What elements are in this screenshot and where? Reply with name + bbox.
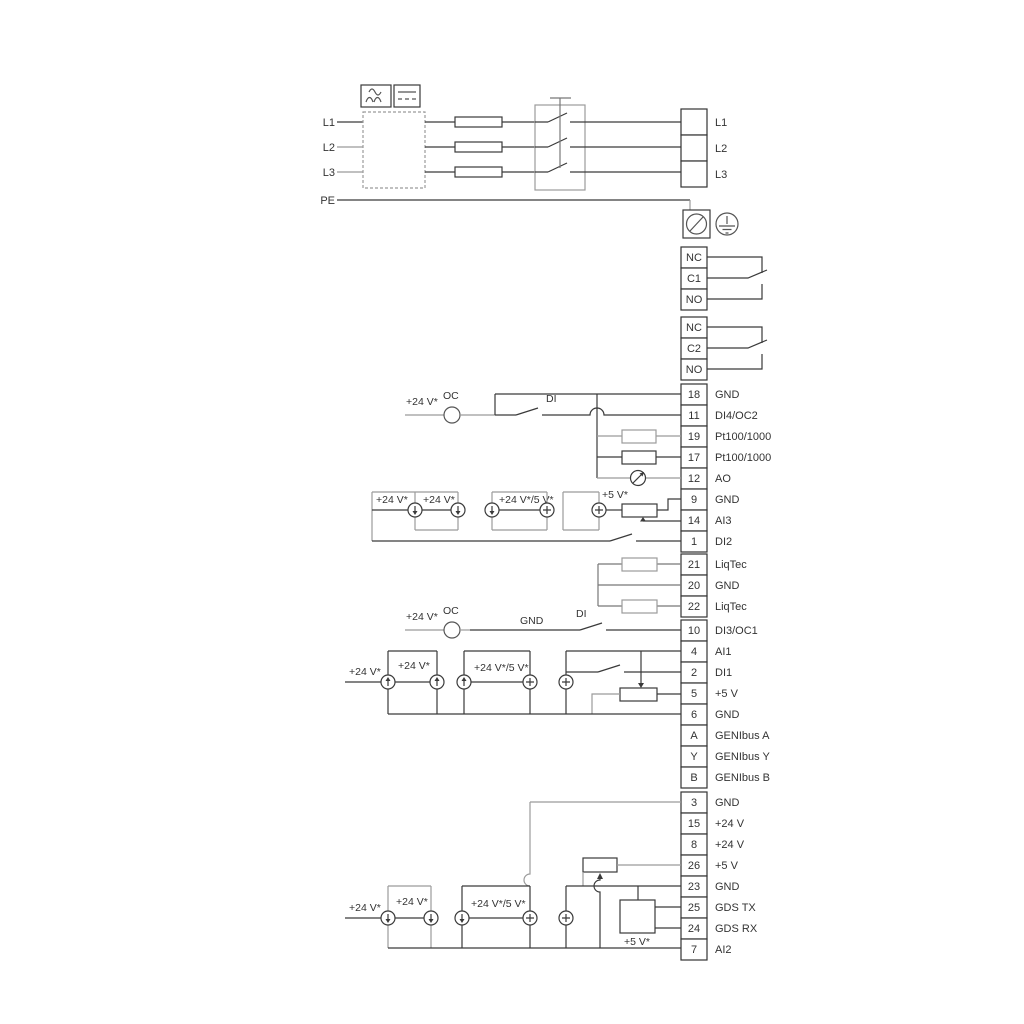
terminal-number: 4 [691, 646, 697, 658]
terminal-label: GDS RX [715, 923, 758, 935]
current-sink-icon [451, 503, 465, 517]
current-sink-icon [424, 911, 438, 925]
phase-l2-in-label: L2 [323, 142, 335, 154]
pt100-circuit-17 [597, 451, 681, 464]
plus5v-label: +5 V* [624, 936, 650, 948]
terminal-number: B [690, 772, 697, 784]
gds-sensor-box [620, 900, 655, 933]
fuse-l3 [455, 167, 502, 177]
earth-ground-icon [716, 213, 738, 235]
terminal-label: GND [715, 709, 740, 721]
di4-switch [516, 408, 538, 415]
di-label: DI [546, 393, 557, 405]
diagram-canvas: L1 L2 L3 PE [0, 0, 1024, 1024]
terminal-label: +24 V [715, 818, 745, 830]
terminal-number: 7 [691, 944, 697, 956]
io-terminal-block-2: 21 20 22 LiqTec GND LiqTec [598, 554, 747, 617]
ai1-potentiometer [620, 688, 657, 701]
oc1-circle [444, 622, 460, 638]
terminal-label: GDS TX [715, 902, 756, 914]
terminal-number: 5 [691, 688, 697, 700]
terminal-number: 8 [691, 839, 697, 851]
relay1-no-label: NO [686, 294, 703, 306]
terminal-label: LiqTec [715, 601, 747, 613]
terminal-number: 6 [691, 709, 697, 721]
voltage-source-icon [592, 503, 606, 517]
terminal-label: Pt100/1000 [715, 452, 771, 464]
relay1-c1-label: C1 [687, 273, 701, 285]
terminal-label: GND [715, 881, 740, 893]
terminal-number: 10 [688, 625, 700, 637]
dc-symbol-icon [394, 85, 420, 107]
terminal-label: DI2 [715, 536, 732, 548]
pt100-circuit-19 [597, 430, 681, 443]
gnd-label: GND [520, 615, 544, 627]
relay2-no-label: NO [686, 364, 703, 376]
terminal-label: GENIbus B [715, 772, 770, 784]
voltage-source-icon [559, 675, 573, 689]
liqtec-resistor-21 [622, 558, 657, 571]
plus24v-label: +24 V* [349, 902, 381, 914]
di2-switch [610, 534, 632, 541]
oc2-circle [444, 407, 460, 423]
ao-circuit [597, 471, 681, 486]
relay1-block: NC C1 NO [681, 247, 767, 310]
gnd-drop-circuit [524, 802, 681, 886]
terminal-label: +5 V [715, 860, 739, 872]
voltage-source-icon [540, 503, 554, 517]
terminal-label: +24 V [715, 839, 745, 851]
terminal-number: 12 [688, 473, 700, 485]
terminal-label: Pt100/1000 [715, 431, 771, 443]
current-source-icon [457, 675, 471, 689]
mains-terminal-block: L1 L2 L3 [681, 109, 727, 187]
plus24v-label: +24 V* [423, 494, 455, 506]
ai3-sensor-group: +24 V* +24 V* +24 V*/5 V* +5 V* [372, 489, 681, 541]
terminal-number: 19 [688, 431, 700, 443]
relay1-nc-label: NC [686, 252, 702, 264]
terminal-number: 23 [688, 881, 700, 893]
terminal-number: 11 [688, 410, 699, 422]
terminal-label: DI3/OC1 [715, 625, 758, 637]
terminal-number: 21 [688, 559, 700, 571]
voltage-source-icon [523, 911, 537, 925]
fuse-l1 [455, 117, 502, 127]
terminal-label: GENIbus Y [715, 751, 770, 763]
fuse-l2 [455, 142, 502, 152]
pt100-resistor-17 [622, 451, 656, 464]
terminal-label: DI1 [715, 667, 732, 679]
terminal-number: 26 [688, 860, 700, 872]
terminal-number: 14 [688, 515, 700, 527]
terminal-number: 1 [691, 536, 697, 548]
di1-switch [598, 665, 620, 672]
terminal-label: GND [715, 389, 740, 401]
pt100-resistor-19 [622, 430, 656, 443]
current-sink-icon [408, 503, 422, 517]
io-terminal-block-3: 10 4 2 5 6 A Y B DI3/OC1 AI1 DI1 +5 V GN… [681, 620, 770, 788]
terminal-label: AI1 [715, 646, 732, 658]
terminal-label: AI2 [715, 944, 732, 956]
io-terminal-block-1: 18 11 19 17 12 9 14 1 GND DI4/OC2 Pt100/… [681, 384, 771, 552]
current-source-icon [381, 675, 395, 689]
terminal-label: GND [715, 494, 740, 506]
ai3-potentiometer [622, 504, 657, 517]
terminal-label: AO [715, 473, 731, 485]
terminal-label: GND [715, 797, 740, 809]
voltage-source-icon [559, 911, 573, 925]
plus5v-label: +5 V* [602, 489, 628, 501]
filter-box [363, 112, 425, 188]
current-sink-icon [485, 503, 499, 517]
power-input-section: L1 L2 L3 PE [320, 85, 738, 238]
terminal-label: GENIbus A [715, 730, 770, 742]
main-switch [535, 98, 585, 190]
plus24v-label: +24 V* [406, 396, 438, 408]
terminal-number: Y [690, 751, 698, 763]
io-terminal-block-4: 3 15 8 26 23 25 24 7 GND +24 V +24 V +5 … [681, 792, 758, 960]
current-source-icon [430, 675, 444, 689]
plus24v-5v-label: +24 V*/5 V* [474, 662, 529, 674]
relay2-nc-label: NC [686, 322, 702, 334]
di3-switch [580, 623, 602, 630]
plus24v-label: +24 V* [398, 660, 430, 672]
terminal-number: 2 [691, 667, 697, 679]
terminal-number: 9 [691, 494, 697, 506]
ai2-pot-gds-circuit: +5 V* [566, 858, 681, 948]
pe-label: PE [320, 195, 335, 207]
terminal-number: A [690, 730, 698, 742]
relay2-c2-label: C2 [687, 343, 701, 355]
current-sink-icon [381, 911, 395, 925]
voltage-source-icon [523, 675, 537, 689]
plus24v-5v-label: +24 V*/5 V* [471, 898, 526, 910]
terminal-number: 3 [691, 797, 697, 809]
ac-symbol-icon [361, 85, 391, 107]
phase-l3-in-label: L3 [323, 167, 335, 179]
plus24v-label: +24 V* [396, 896, 428, 908]
pe-screw-terminal [683, 210, 710, 238]
phase-l2-out-label: L2 [715, 143, 727, 155]
ai2-potentiometer [583, 858, 617, 872]
ai1-sensor-group: +24 V* +24 V* +24 V*/5 V* [345, 651, 681, 714]
terminal-number: 18 [688, 389, 700, 401]
liqtec-resistor-22 [622, 600, 657, 613]
terminal-label: GND [715, 580, 740, 592]
terminal-number: 22 [688, 601, 700, 613]
relay2-block: NC C2 NO [681, 317, 767, 380]
di-label: DI [576, 608, 587, 620]
phase-l3-out-label: L3 [715, 169, 727, 181]
oc-label: OC [443, 390, 459, 402]
oc-label: OC [443, 605, 459, 617]
terminal-number: 15 [688, 818, 700, 830]
plus24v-label: +24 V* [406, 611, 438, 623]
wiring-diagram-page: { "power": { "inputs": ["L1", "L2", "L3"… [0, 0, 1024, 1024]
terminal-number: 24 [688, 923, 700, 935]
terminal-label: LiqTec [715, 559, 747, 571]
terminal-label: +5 V [715, 688, 739, 700]
phase-l1-in-label: L1 [323, 117, 335, 129]
plus24v-label: +24 V* [376, 494, 408, 506]
terminal-number: 25 [688, 902, 700, 914]
terminal-number: 20 [688, 580, 700, 592]
phase-l1-out-label: L1 [715, 117, 727, 129]
plus24v-label: +24 V* [349, 666, 381, 678]
current-sink-icon [455, 911, 469, 925]
terminal-label: AI3 [715, 515, 732, 527]
terminal-label: DI4/OC2 [715, 410, 758, 422]
terminal-number: 17 [688, 452, 700, 464]
